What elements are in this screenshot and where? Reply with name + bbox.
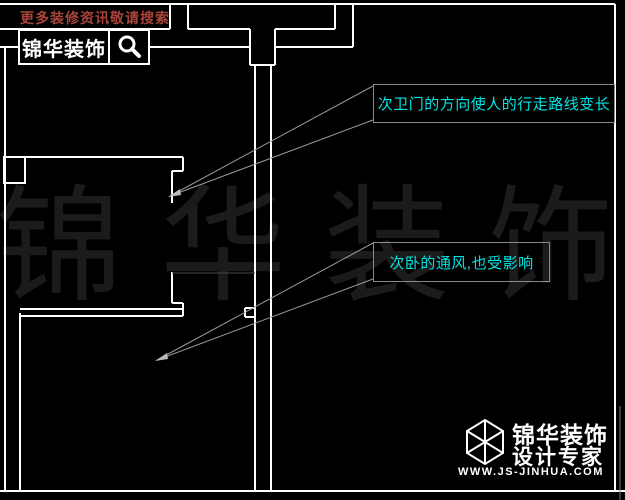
- annotation-box-bathroom-door: 次卫门的方向使人的行走路线变长: [373, 84, 615, 123]
- footer-website-label: WWW.JS-JINHUA.COM: [458, 466, 604, 478]
- company-logo-block: 锦华装饰 设计专家 WWW.JS-JINHUA.COM: [456, 410, 624, 498]
- cube-logo-icon: [464, 418, 506, 466]
- leader-arrowhead-2: [155, 353, 168, 361]
- annotation-text: 次卧的通风,也受影响: [389, 252, 533, 273]
- magnifier-icon: [116, 34, 142, 60]
- search-button[interactable]: [108, 31, 148, 63]
- brand-name-label: 锦华装饰: [20, 31, 108, 63]
- leader-arrowhead-1: [168, 189, 181, 197]
- search-logo-box[interactable]: 锦华装饰: [18, 29, 150, 65]
- cad-canvas: 锦华装饰: [0, 0, 625, 500]
- annotation-box-bedroom-vent: 次卧的通风,也受影响: [373, 242, 550, 282]
- annotation-text: 次卫门的方向使人的行走路线变长: [378, 93, 611, 114]
- search-hint-text: 更多装修资讯敬请搜索: [20, 8, 170, 28]
- leader-lines-callout-2: [157, 243, 373, 360]
